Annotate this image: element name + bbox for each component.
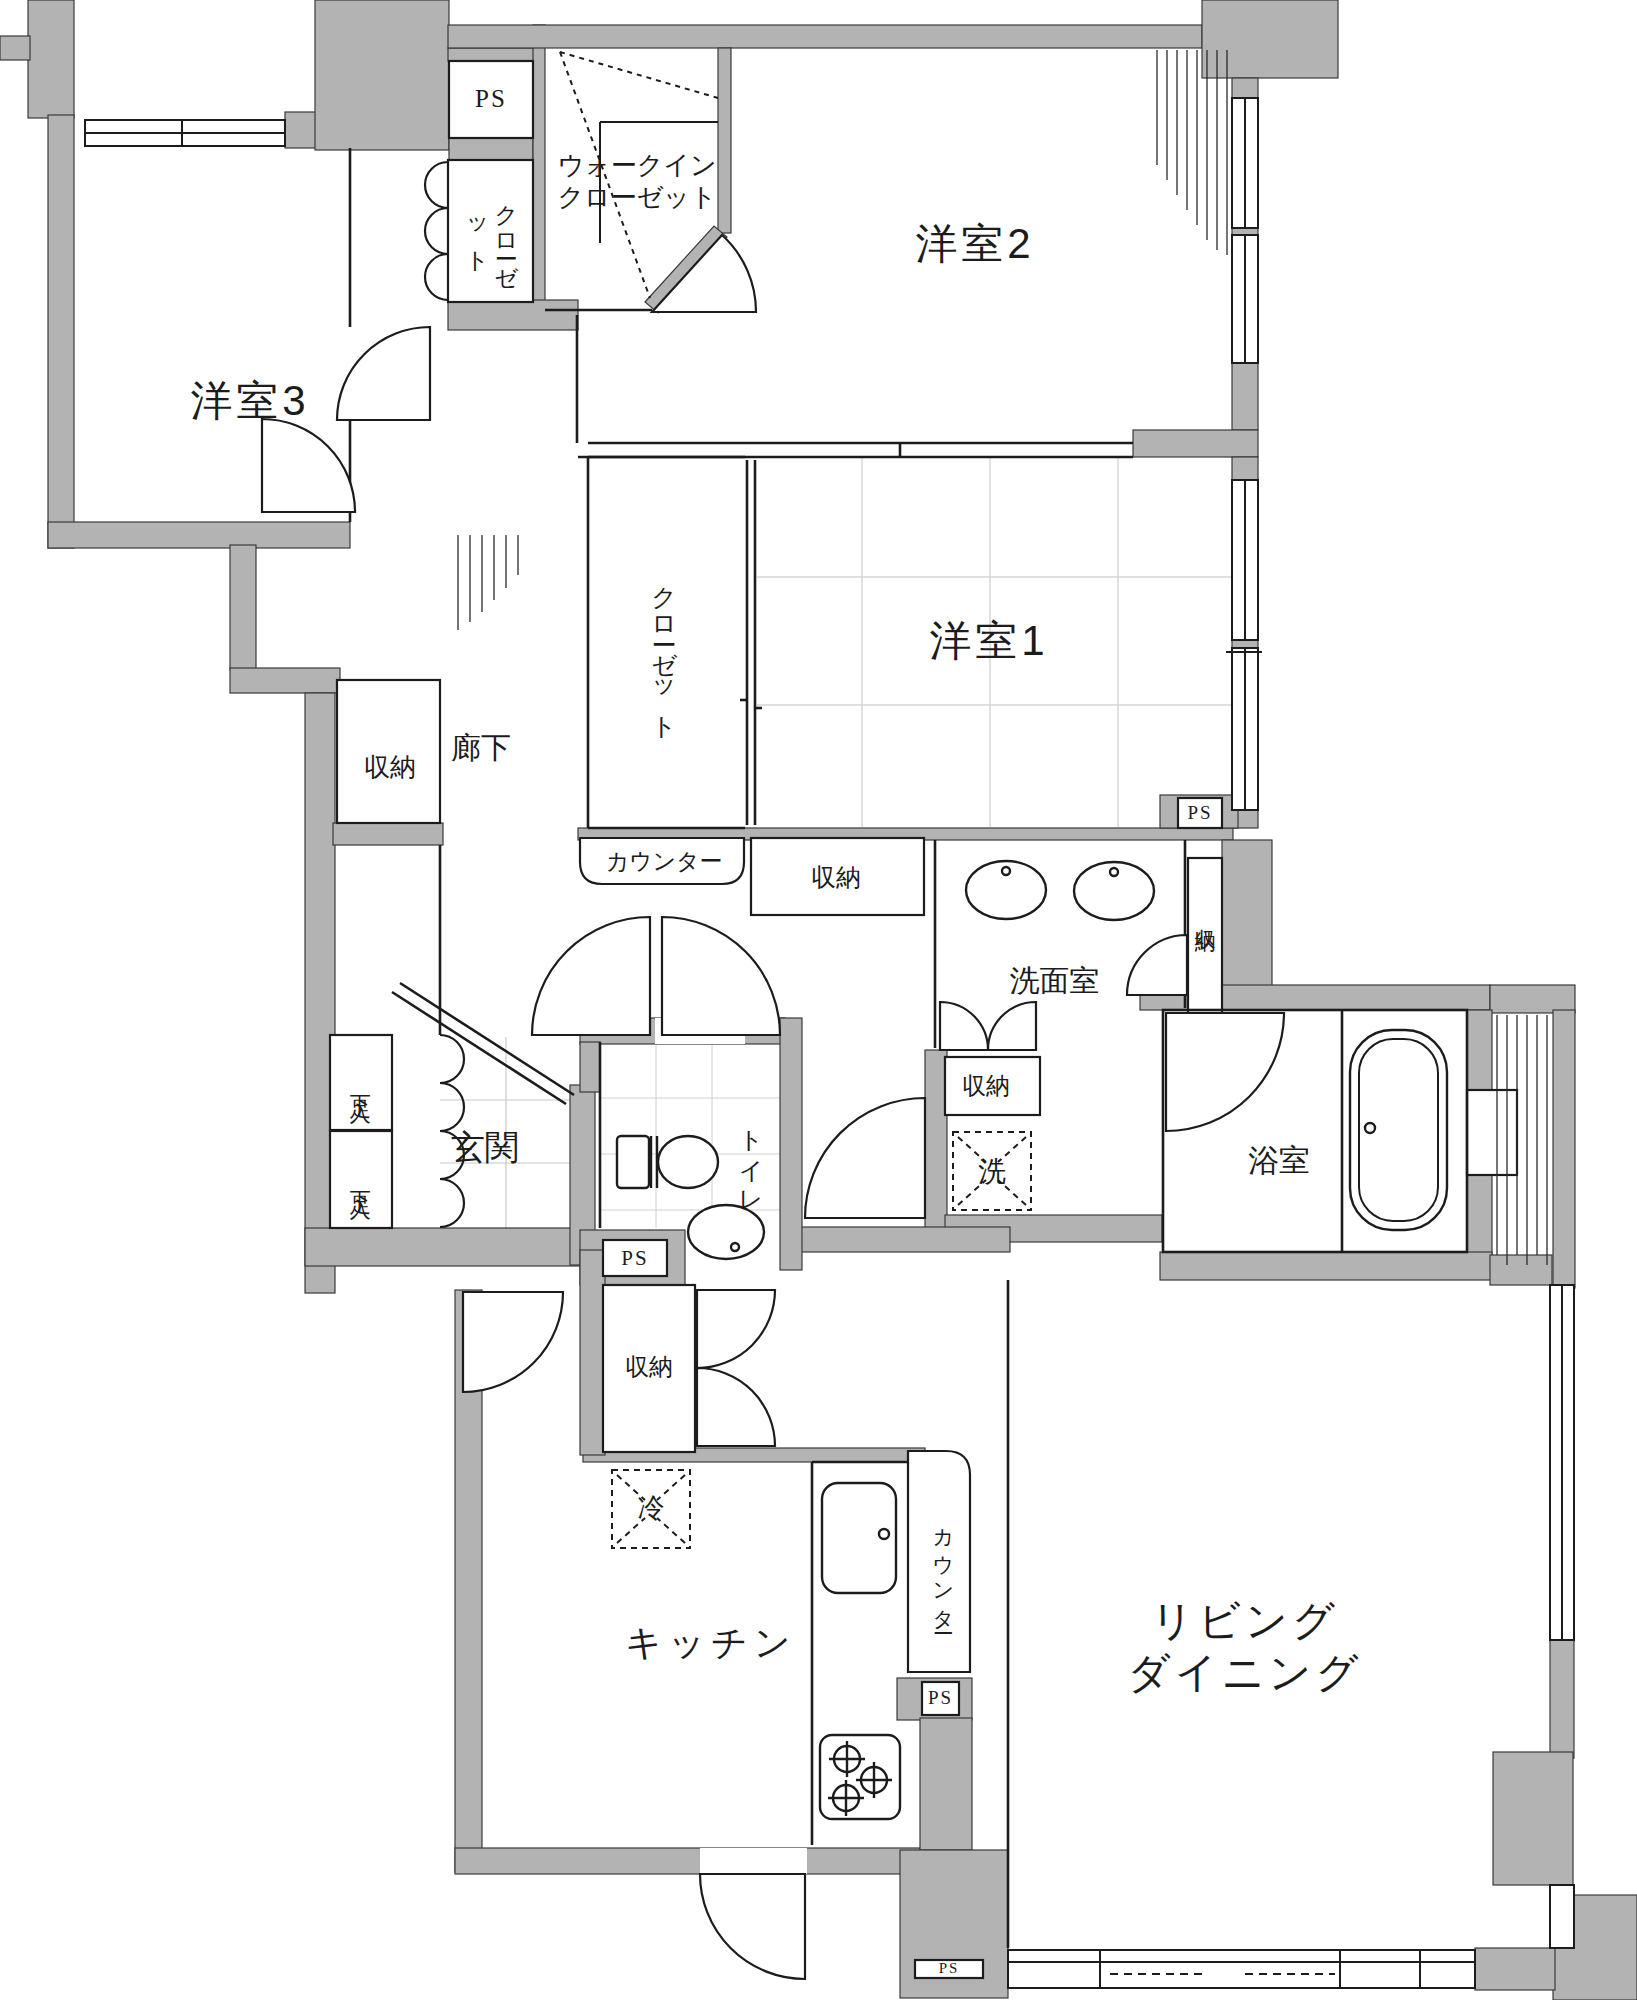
kitchen-door-gap <box>700 1848 807 1874</box>
shoe-cabinet-label-2: 下足入 <box>346 1138 374 1220</box>
storage-label-mid: 収納 <box>801 864 871 892</box>
washroom-label: 洗面室 <box>998 964 1111 998</box>
bifold-closet-left-3 <box>425 254 448 300</box>
door-kitchen-storage-bottom <box>697 1368 775 1446</box>
shoe-cabinet-label-1: 下足入 <box>346 1042 374 1124</box>
floor-plan: PS クローゼット ウォークイン クローゼット 洋室2 洋室3 洋室1 クローゼ… <box>0 0 1637 2000</box>
storage-label-right: 収納 <box>1191 872 1219 958</box>
washer-symbol-label: 洗 <box>976 1156 1008 1186</box>
toilet <box>617 1136 718 1188</box>
bathroom-label: 浴室 <box>1238 1144 1320 1178</box>
closet-left-label: クローゼット <box>462 178 522 290</box>
storage-label-kitchen: 収納 <box>616 1353 682 1381</box>
ps-label-4: PS <box>923 1684 958 1712</box>
fridge-symbol-label: 冷 <box>635 1494 667 1524</box>
counter-label-kitchen: カウンター <box>928 1498 958 1640</box>
corridor-label: 廊下 <box>440 732 522 764</box>
storage-label-hall: 収納 <box>355 752 425 782</box>
kitchen-label: キッチン <box>621 1622 801 1662</box>
door-kitchen-service <box>700 1874 805 1979</box>
floor-plan-drawing <box>0 0 1637 2000</box>
window-ld-right-2 <box>1550 1885 1574 1948</box>
door-kitchen-entry <box>463 1292 563 1392</box>
room-label-yoshitsu3: 洋室3 <box>175 379 325 423</box>
closet-mid-label: クローゼット <box>648 552 680 747</box>
door-hall-ld <box>805 1098 925 1218</box>
toilet-hand-basin <box>688 1205 764 1259</box>
room-label-yoshitsu1: 洋室1 <box>914 619 1064 663</box>
walk-in-closet-label: ウォークイン クローゼット <box>548 148 726 214</box>
room-label-yoshitsu2: 洋室2 <box>900 222 1050 266</box>
ps-label-1: PS <box>455 84 527 114</box>
entrance-label: 玄関 <box>440 1128 530 1166</box>
bath-niche <box>1467 1090 1517 1175</box>
bathtub <box>1350 1030 1447 1230</box>
door-kitchen-storage-top <box>697 1290 775 1368</box>
living-dining-label: リビング ダイニング <box>1115 1595 1375 1699</box>
ps-label-5: PS <box>916 1960 982 1977</box>
ps-label-3: PS <box>604 1244 666 1272</box>
toilet-label: トイレ <box>737 1112 765 1204</box>
window-ld-bottom <box>1008 1950 1475 1988</box>
door-yoshitsu3-1 <box>337 327 430 420</box>
storage-label-washroom: 収納 <box>952 1073 1020 1099</box>
ps-label-2: PS <box>1179 800 1221 826</box>
counter-label-hall: カウンター <box>600 848 728 874</box>
bifold-closet-left-1 <box>425 162 448 208</box>
kitchen-sink <box>822 1483 896 1593</box>
stove-3-burner <box>820 1735 900 1819</box>
bifold-closet-left-2 <box>425 208 448 254</box>
